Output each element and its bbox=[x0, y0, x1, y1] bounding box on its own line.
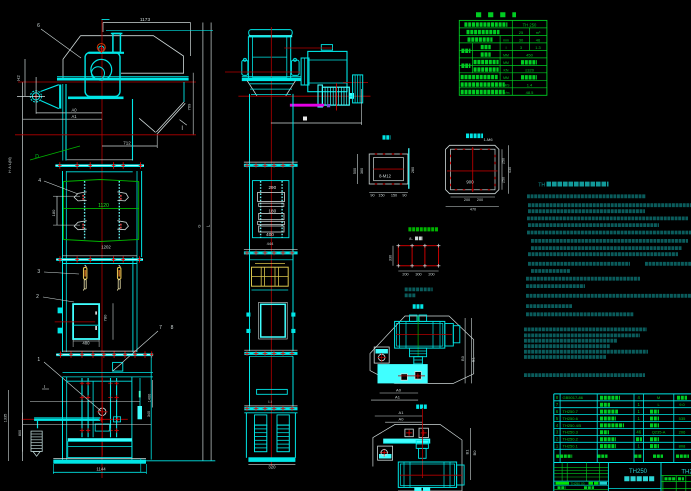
svg-text:206: 206 bbox=[679, 430, 686, 435]
svg-text:TH2: TH2 bbox=[681, 470, 691, 476]
svg-text:1202: 1202 bbox=[101, 244, 111, 249]
svg-text:90: 90 bbox=[370, 194, 374, 198]
svg-text:A1: A1 bbox=[399, 410, 405, 415]
svg-text:r/m: r/m bbox=[505, 91, 510, 95]
svg-text:mm: mm bbox=[503, 39, 509, 43]
svg-text:340: 340 bbox=[147, 411, 151, 417]
svg-text:280: 280 bbox=[411, 167, 415, 173]
svg-text:400: 400 bbox=[266, 232, 274, 237]
svg-text:900: 900 bbox=[466, 180, 474, 185]
svg-text:D: D bbox=[35, 154, 39, 160]
svg-text:808: 808 bbox=[679, 444, 686, 449]
svg-text:8-M12: 8-M12 bbox=[379, 174, 392, 179]
svg-text:A1: A1 bbox=[71, 114, 77, 119]
svg-text:1-M6: 1-M6 bbox=[483, 137, 493, 142]
svg-text:TH250: TH250 bbox=[629, 469, 648, 475]
svg-text:200: 200 bbox=[428, 272, 434, 276]
svg-text:B1: B1 bbox=[471, 357, 475, 362]
svg-text:I: I bbox=[44, 384, 45, 389]
svg-text:535: 535 bbox=[679, 416, 686, 421]
svg-text:800: 800 bbox=[18, 430, 22, 436]
svg-text:250: 250 bbox=[502, 177, 506, 183]
svg-text:500: 500 bbox=[353, 168, 357, 174]
svg-text:≥320: ≥320 bbox=[525, 68, 535, 73]
svg-text:450: 450 bbox=[526, 53, 533, 58]
svg-text:1400: 1400 bbox=[147, 394, 151, 402]
svg-text:TH250.2: TH250.2 bbox=[563, 437, 579, 442]
svg-text:4: 4 bbox=[38, 178, 41, 184]
svg-text:H·A·L(M): H·A·L(M) bbox=[8, 156, 12, 172]
svg-text:470: 470 bbox=[470, 207, 476, 211]
svg-text:150: 150 bbox=[391, 194, 397, 198]
svg-text:250: 250 bbox=[502, 158, 506, 164]
svg-text:1173: 1173 bbox=[140, 17, 151, 23]
svg-text:M: M bbox=[657, 395, 660, 400]
svg-text:712: 712 bbox=[123, 140, 131, 145]
svg-text:30: 30 bbox=[519, 38, 524, 43]
svg-text:B1: B1 bbox=[465, 449, 470, 455]
svg-text:1.3: 1.3 bbox=[535, 45, 541, 50]
svg-text:MM: MM bbox=[503, 54, 509, 58]
svg-text:1144: 1144 bbox=[96, 466, 106, 471]
svg-text:I-I: I-I bbox=[268, 400, 271, 404]
svg-text:TH250.1: TH250.1 bbox=[563, 444, 579, 449]
svg-text:48.5: 48.5 bbox=[526, 90, 535, 95]
svg-text:G: G bbox=[197, 224, 202, 227]
svg-text:A0: A0 bbox=[396, 388, 402, 393]
svg-text:180: 180 bbox=[268, 208, 276, 213]
svg-text:B0: B0 bbox=[461, 356, 465, 361]
svg-text:M/S: M/S bbox=[503, 84, 510, 88]
svg-text:90: 90 bbox=[402, 194, 406, 198]
svg-text:320: 320 bbox=[268, 464, 276, 469]
svg-text:46: 46 bbox=[536, 38, 541, 43]
svg-text:200: 200 bbox=[477, 198, 483, 202]
svg-text:7: 7 bbox=[159, 325, 162, 331]
svg-text:TH: TH bbox=[538, 183, 545, 189]
svg-text:3: 3 bbox=[37, 269, 40, 275]
svg-text:200: 200 bbox=[464, 198, 470, 202]
svg-text:A0: A0 bbox=[71, 108, 77, 113]
svg-text:1.4: 1.4 bbox=[527, 83, 533, 88]
svg-text:1335: 1335 bbox=[4, 414, 8, 422]
svg-text:GB5017-86: GB5017-86 bbox=[563, 395, 584, 400]
svg-text:1120: 1120 bbox=[98, 203, 109, 209]
svg-text:m³: m³ bbox=[536, 31, 541, 35]
svg-text:6: 6 bbox=[37, 23, 40, 29]
svg-text:200: 200 bbox=[402, 272, 408, 276]
svg-text:Q235-A: Q235-A bbox=[652, 430, 666, 435]
svg-text:A0: A0 bbox=[399, 417, 405, 422]
svg-text:TH250.7: TH250.7 bbox=[563, 409, 579, 414]
svg-text:300: 300 bbox=[415, 272, 421, 276]
svg-text:25: 25 bbox=[519, 30, 524, 35]
svg-text:TH250.6: TH250.6 bbox=[563, 416, 579, 421]
svg-text:290: 290 bbox=[268, 185, 276, 190]
svg-text:330: 330 bbox=[389, 255, 393, 261]
svg-text:430: 430 bbox=[508, 167, 512, 173]
svg-text:780: 780 bbox=[103, 314, 108, 321]
svg-text:8: 8 bbox=[171, 325, 174, 331]
svg-text:444: 444 bbox=[267, 241, 274, 246]
svg-text:TH250.3: TH250.3 bbox=[563, 430, 579, 435]
svg-text:769: 769 bbox=[186, 103, 191, 110]
svg-text:TH250.4/5: TH250.4/5 bbox=[563, 423, 582, 428]
svg-text:9.0: 9.0 bbox=[679, 402, 685, 407]
svg-text:46: 46 bbox=[636, 430, 641, 435]
svg-text:TH 250: TH 250 bbox=[523, 23, 537, 28]
svg-text:MM: MM bbox=[503, 61, 509, 65]
svg-text:360: 360 bbox=[360, 168, 364, 174]
svg-text:KN: KN bbox=[504, 69, 509, 73]
svg-text:B0: B0 bbox=[472, 450, 477, 456]
svg-text:180: 180 bbox=[51, 209, 56, 216]
svg-text:150: 150 bbox=[378, 194, 384, 198]
svg-text:2: 2 bbox=[36, 294, 39, 300]
svg-text:A1: A1 bbox=[395, 395, 401, 400]
svg-text:1: 1 bbox=[37, 357, 40, 363]
svg-text:H2: H2 bbox=[16, 75, 21, 81]
svg-text:MM: MM bbox=[503, 76, 509, 80]
